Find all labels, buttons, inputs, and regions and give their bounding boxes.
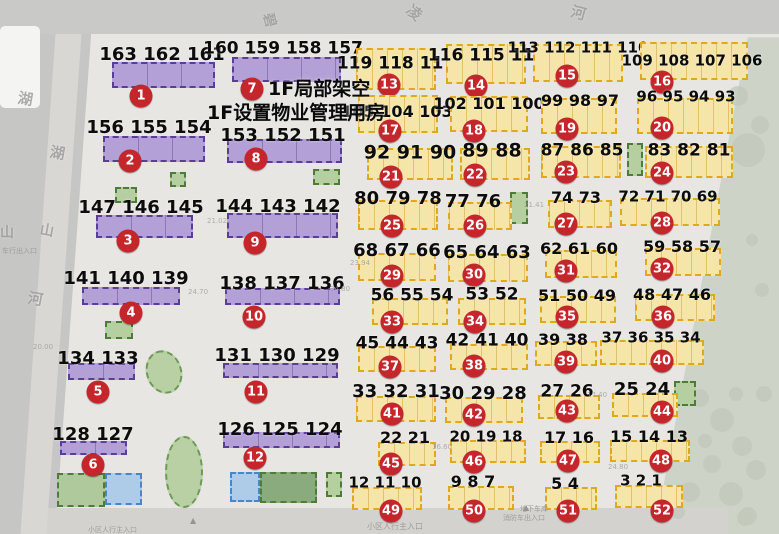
outside-left-band xyxy=(0,0,120,534)
street-name-label: 河 xyxy=(569,0,589,24)
building-badge: 11 xyxy=(245,381,268,404)
elevation-value: 20.00 xyxy=(33,344,53,351)
entrance-label: 小区人行主入口 xyxy=(367,523,423,531)
yellow-residential-building xyxy=(545,250,617,278)
elevation-value: 24.80 xyxy=(608,464,628,471)
building-badge: 32 xyxy=(651,258,674,281)
yellow-residential-building xyxy=(645,146,733,178)
yellow-residential-building xyxy=(448,486,514,510)
building-number-label: 109 108 107 106 xyxy=(622,54,763,69)
building-number-label: 53 52 xyxy=(465,287,518,304)
building-badge: 2 xyxy=(119,150,142,173)
purple-residential-building xyxy=(82,287,180,305)
building-number-label: 87 86 85 xyxy=(541,143,624,160)
tree-icon xyxy=(719,482,743,506)
building-number-label: 119 118 117 xyxy=(337,56,455,73)
street-name-label: 山 xyxy=(38,219,55,241)
building-badge: 33 xyxy=(381,311,404,334)
building-badge: 36 xyxy=(652,306,675,329)
yellow-residential-building xyxy=(367,148,453,180)
building-number-label: 17 16 xyxy=(544,430,594,446)
building-badge: 31 xyxy=(555,260,578,283)
entrance-arrow-icon: ▲ xyxy=(523,504,529,512)
building-badge: 43 xyxy=(556,400,579,423)
yellow-residential-building xyxy=(635,294,715,321)
building-badge: 20 xyxy=(651,117,674,140)
building-badge: 16 xyxy=(651,71,674,94)
building-badge: 30 xyxy=(463,264,486,287)
yellow-residential-building xyxy=(358,253,436,281)
building-number-label: 39 38 xyxy=(538,332,588,348)
building-number-label: 51 50 49 xyxy=(538,288,616,304)
yellow-residential-building xyxy=(450,344,528,370)
building-badge: 19 xyxy=(556,118,579,141)
building-number-label: 128 127 xyxy=(52,426,133,444)
building-badge: 18 xyxy=(463,120,486,143)
elevation-value: 23.94 xyxy=(350,260,370,267)
elevation-value: 34.80 xyxy=(330,286,350,293)
amenity-green-block xyxy=(57,473,105,507)
building-badge: 27 xyxy=(555,213,578,236)
purple-residential-building xyxy=(68,363,135,380)
building-badge: 40 xyxy=(651,350,674,373)
building-badge: 24 xyxy=(651,162,674,185)
building-badge: 34 xyxy=(464,311,487,334)
amenity-green-block xyxy=(260,472,317,503)
tree-icon xyxy=(739,507,757,525)
building-number-label: 22 21 xyxy=(380,430,430,446)
amenity-blue-building xyxy=(105,473,142,505)
purple-residential-building xyxy=(227,213,338,238)
yellow-residential-building xyxy=(541,146,621,178)
building-badge: 7 xyxy=(241,78,264,101)
building-badge: 49 xyxy=(380,500,403,523)
building-number-label: 56 55 54 xyxy=(371,288,454,305)
yellow-residential-building xyxy=(615,485,683,508)
yellow-residential-building xyxy=(637,98,733,134)
building-badge: 37 xyxy=(379,356,402,379)
tree-icon xyxy=(680,482,700,502)
building-number-label: 5 4 xyxy=(551,476,579,492)
purple-residential-building xyxy=(60,441,127,455)
building-number-label: 9 8 7 xyxy=(451,474,496,490)
yellow-residential-building xyxy=(545,487,597,510)
yellow-residential-building xyxy=(445,397,523,423)
tree-icon xyxy=(731,133,765,167)
building-badge: 9 xyxy=(244,232,267,255)
building-number-label: 163 162 161 xyxy=(99,46,224,64)
building-number-label: 99 98 97 xyxy=(541,93,619,109)
tree-icon xyxy=(732,436,752,456)
entrance-arrow-icon: ▲ xyxy=(190,517,196,525)
yellow-residential-building xyxy=(541,98,617,134)
building-badge: 46 xyxy=(463,451,486,474)
building-number-label: 141 140 139 xyxy=(63,270,188,288)
amenity-green-building xyxy=(313,169,340,185)
building-badge: 10 xyxy=(243,306,266,329)
white-building-block xyxy=(0,26,40,108)
building-number-label: 25 24 xyxy=(614,381,670,399)
building-badge: 22 xyxy=(464,164,487,187)
building-number-label: 42 41 40 xyxy=(446,333,529,350)
building-number-label: 48 47 46 xyxy=(633,287,711,303)
elevation-value: 24.70 xyxy=(188,289,208,296)
amenity-green-building xyxy=(674,381,696,406)
tree-icon xyxy=(746,234,758,246)
building-badge: 38 xyxy=(463,355,486,378)
tree-icon xyxy=(746,460,766,480)
note-1f-partial-stilt: 1F局部架空 xyxy=(268,79,370,101)
building-number-label: 113 112 111 110 xyxy=(508,41,649,56)
yellow-residential-building xyxy=(540,296,616,323)
yellow-residential-building xyxy=(378,442,436,466)
building-number-label: 62 61 60 xyxy=(540,241,618,257)
building-number-label: 80 79 78 xyxy=(354,190,442,208)
purple-residential-building xyxy=(112,62,215,88)
building-number-label: 30 29 28 xyxy=(439,385,527,403)
yellow-residential-building xyxy=(610,440,690,462)
building-number-label: 153 152 151 xyxy=(220,127,345,145)
building-badge: 29 xyxy=(381,265,404,288)
tree-icon xyxy=(691,389,709,407)
tree-icon xyxy=(710,408,734,432)
purple-residential-building xyxy=(227,139,342,163)
yellow-residential-building xyxy=(448,254,528,282)
park-green-ellipse xyxy=(165,436,203,508)
building-badge: 42 xyxy=(463,404,486,427)
landscape-right-area xyxy=(0,0,779,534)
entrance-label: 车行出入口 xyxy=(2,248,37,255)
building-badge: 6 xyxy=(82,454,105,477)
tree-icon xyxy=(698,434,712,448)
building-number-label: 134 133 xyxy=(57,350,138,368)
building-badge: 41 xyxy=(381,403,404,426)
yellow-residential-building xyxy=(450,96,528,132)
entrance-label: 小区人行主入口 xyxy=(88,527,137,534)
yellow-residential-building xyxy=(538,395,600,419)
yellow-residential-building xyxy=(600,340,704,365)
building-badge: 14 xyxy=(465,75,488,98)
yellow-residential-building xyxy=(448,202,512,230)
purple-residential-building xyxy=(225,288,340,305)
building-number-label: 92 91 90 xyxy=(364,144,457,163)
yellow-residential-building xyxy=(612,393,678,417)
building-badge: 21 xyxy=(380,166,403,189)
building-number-label: 77 76 xyxy=(445,193,501,211)
building-badge: 1 xyxy=(130,85,153,108)
building-number-label: 65 64 63 xyxy=(443,244,531,262)
tree-icon xyxy=(737,510,753,526)
amenity-green-building xyxy=(105,321,133,339)
entrance-label: 消防车出入口 xyxy=(503,515,545,522)
building-number-label: 156 155 154 xyxy=(86,119,211,137)
elevation-value: 21.02 xyxy=(207,218,227,225)
building-badge: 44 xyxy=(651,401,674,424)
yellow-residential-building xyxy=(540,441,600,463)
building-badge: 5 xyxy=(87,381,110,404)
street-name-label: 河 xyxy=(26,287,44,310)
building-number-label: 12 11 10 xyxy=(348,476,421,491)
building-badge: 4 xyxy=(120,302,143,325)
building-number-label: 15 14 13 xyxy=(610,429,688,445)
amenity-green-building xyxy=(627,143,643,176)
building-number-label: 3 2 1 xyxy=(620,474,662,489)
yellow-residential-building xyxy=(645,248,721,276)
building-badge: 3 xyxy=(117,230,140,253)
building-number-label: 96 95 94 93 xyxy=(636,90,735,105)
building-badge: 39 xyxy=(555,351,578,374)
outside-top-band xyxy=(0,0,779,34)
street-name-label: 湖 xyxy=(16,87,34,110)
street-name-label: 碧 xyxy=(259,11,282,30)
yellow-residential-building xyxy=(352,487,422,510)
tree-icon xyxy=(671,505,685,519)
building-number-label: 116 115 114 xyxy=(428,48,546,65)
building-number-label: 27 26 xyxy=(540,384,593,401)
purple-residential-building xyxy=(223,432,340,448)
tree-icon xyxy=(729,387,743,401)
building-badge: 50 xyxy=(463,500,486,523)
building-number-label: 160 159 158 157 xyxy=(203,41,363,58)
yellow-residential-building xyxy=(640,42,748,80)
entrance-label: 地下车库 xyxy=(520,506,548,513)
amenity-green-building xyxy=(510,192,528,224)
left-inner-road xyxy=(21,34,82,534)
building-badge: 26 xyxy=(464,215,487,238)
yellow-residential-building xyxy=(535,341,597,366)
tree-icon xyxy=(751,116,769,134)
building-number-label: 83 82 81 xyxy=(648,143,731,160)
tree-icon xyxy=(703,455,721,473)
building-number-label: 72 71 70 69 xyxy=(618,190,717,205)
purple-residential-building xyxy=(223,363,338,378)
building-badge: 15 xyxy=(556,65,579,88)
building-number-label: 68 67 66 xyxy=(353,242,441,260)
park-green-ellipse xyxy=(140,346,188,399)
building-number-label: 45 44 43 xyxy=(356,336,439,353)
building-badge: 13 xyxy=(378,74,401,97)
yellow-residential-building xyxy=(372,298,448,325)
building-badge: 45 xyxy=(380,453,403,476)
building-number-label: 33 32 31 xyxy=(352,383,440,401)
note-1f-property-mgmt: 1F设置物业管理用房 xyxy=(207,103,385,125)
building-badge: 35 xyxy=(556,306,579,329)
building-badge: 12 xyxy=(244,447,267,470)
amenity-green-building xyxy=(170,172,186,187)
building-number-label: 138 137 136 xyxy=(219,275,344,293)
building-number-label: 131 130 129 xyxy=(214,347,339,365)
building-number-label: 74 73 xyxy=(551,190,601,206)
building-number-label: 89 88 xyxy=(462,142,522,161)
building-badge: 47 xyxy=(557,450,580,473)
yellow-residential-building xyxy=(460,148,530,180)
site-plan: 163 162 1611160 159 158 1577156 155 1542… xyxy=(0,0,779,534)
elevation-value: 17.40 xyxy=(587,392,607,399)
building-badge: 48 xyxy=(650,450,673,473)
building-badge: 23 xyxy=(555,161,578,184)
yellow-residential-building xyxy=(533,44,623,82)
yellow-residential-building xyxy=(358,200,438,230)
yellow-residential-building xyxy=(446,44,526,84)
yellow-residential-building xyxy=(450,440,526,463)
tree-icon xyxy=(756,386,772,402)
building-number-label: 126 125 124 xyxy=(217,421,342,439)
yellow-residential-building xyxy=(548,200,612,228)
building-badge: 28 xyxy=(651,212,674,235)
yellow-residential-building xyxy=(620,198,720,226)
building-number-label: 59 58 57 xyxy=(643,239,721,255)
building-badge: 8 xyxy=(245,148,268,171)
tree-icon xyxy=(728,86,748,106)
building-badge: 25 xyxy=(381,215,404,238)
elevation-value: 21.41 xyxy=(524,202,544,209)
yellow-residential-building xyxy=(358,346,436,372)
building-number-label: 37 36 35 34 xyxy=(601,331,700,346)
building-badge: 51 xyxy=(557,500,580,523)
building-badge: 52 xyxy=(651,500,674,523)
street-name-label: 凌 xyxy=(402,0,427,25)
street-name-label: 湖 xyxy=(48,141,66,164)
purple-residential-building xyxy=(96,215,193,238)
purple-residential-building xyxy=(103,136,205,162)
building-number-label: 144 143 142 xyxy=(215,198,340,216)
amenity-blue-building xyxy=(230,472,260,502)
elevation-value: 16.60 xyxy=(432,444,452,451)
amenity-green-building xyxy=(326,472,342,497)
yellow-residential-building xyxy=(356,396,436,422)
building-number-label: 20 19 18 xyxy=(449,430,522,445)
bottom-road xyxy=(28,508,728,534)
tree-icon xyxy=(755,283,769,297)
street-name-label: 山 xyxy=(0,222,14,242)
building-number-label: 147 146 145 xyxy=(78,199,203,217)
building-number-label: 102 101 100 xyxy=(433,96,544,112)
yellow-residential-building xyxy=(458,298,526,325)
amenity-green-building xyxy=(115,187,137,203)
